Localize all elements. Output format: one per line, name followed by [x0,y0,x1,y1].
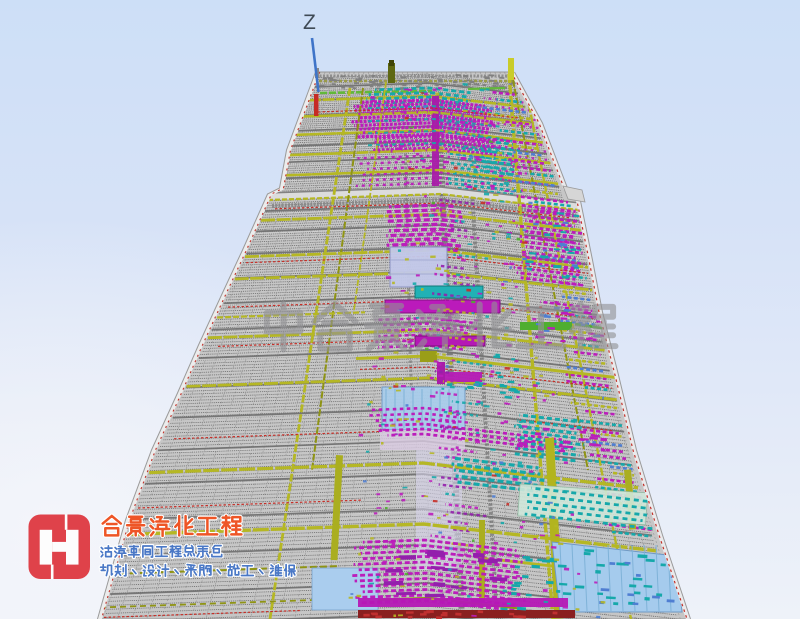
svg-text:Z: Z [303,11,316,34]
